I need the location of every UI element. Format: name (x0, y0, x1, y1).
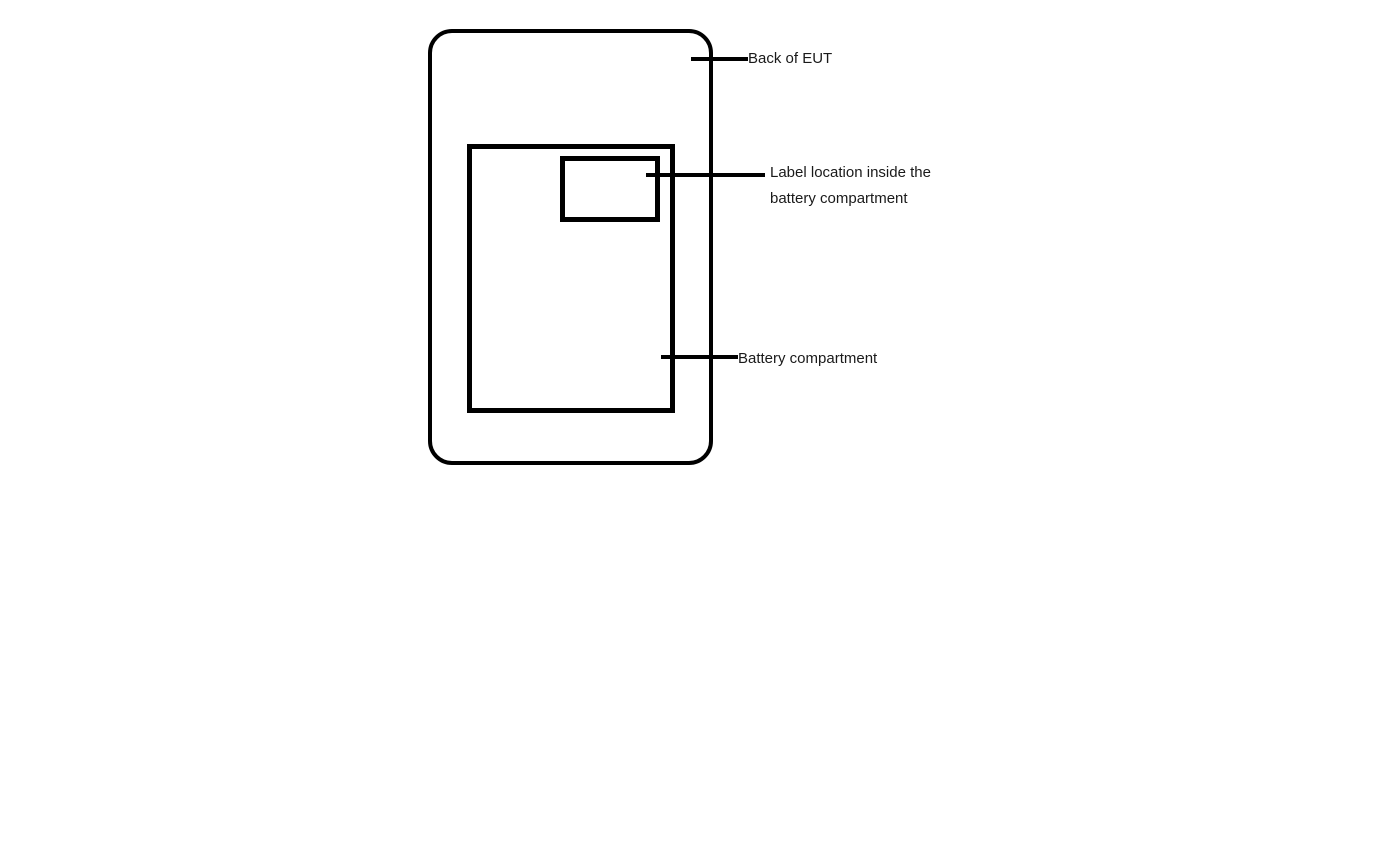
callout-battery-compartment: Battery compartment (738, 346, 877, 372)
diagram-canvas: Back of EUT Label location inside the ba… (0, 0, 1384, 858)
leader-line-battery-compartment (661, 355, 738, 359)
callout-label-location: Label location inside the battery compar… (770, 160, 931, 212)
leader-line-label-location (646, 173, 765, 177)
leader-line-back-of-eut (691, 57, 748, 61)
callout-label-location-line2: battery compartment (770, 186, 931, 212)
label-location-rect (560, 156, 660, 222)
callout-label-location-line1: Label location inside the (770, 160, 931, 186)
callout-back-of-eut: Back of EUT (748, 46, 832, 72)
